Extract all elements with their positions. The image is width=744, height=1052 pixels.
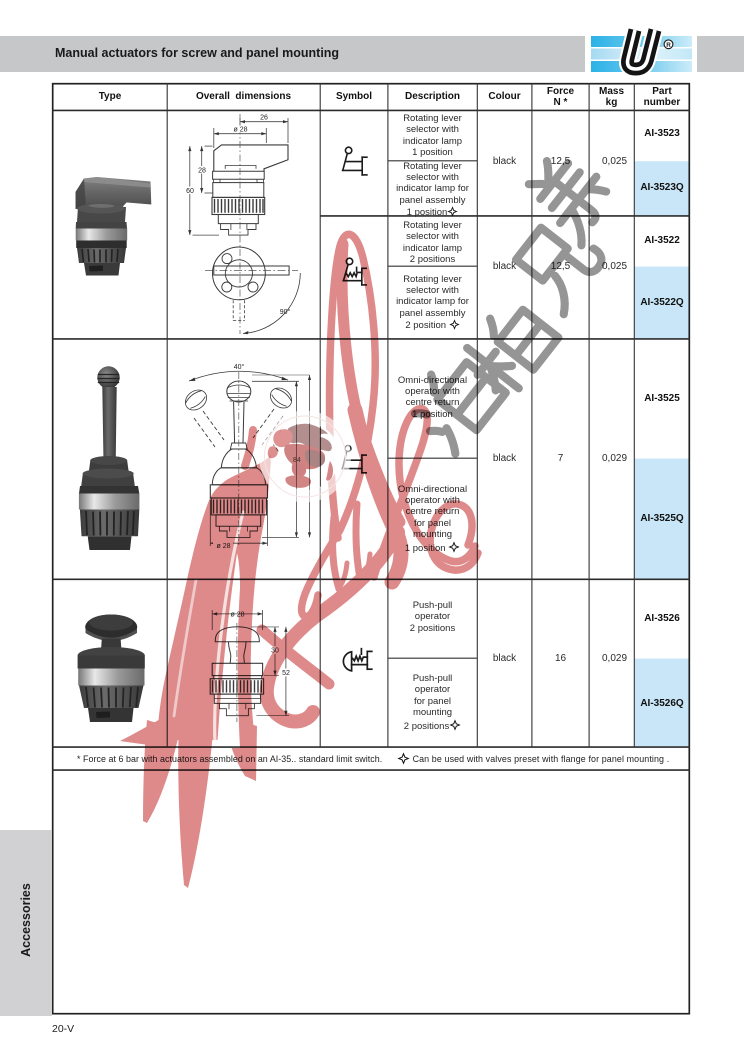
svg-text:30: 30 bbox=[271, 648, 279, 655]
svg-text:84: 84 bbox=[293, 458, 301, 465]
svg-text:ø 28: ø 28 bbox=[216, 543, 230, 550]
svg-text:52: 52 bbox=[282, 670, 290, 677]
svg-text:60: 60 bbox=[186, 188, 194, 195]
svg-text:90°: 90° bbox=[280, 308, 291, 316]
svg-text:28: 28 bbox=[198, 168, 206, 175]
svg-text:ø 28: ø 28 bbox=[233, 127, 247, 134]
svg-text:26: 26 bbox=[260, 115, 268, 122]
svg-text:ø 28: ø 28 bbox=[230, 612, 244, 619]
svg-text:40°: 40° bbox=[234, 363, 245, 371]
